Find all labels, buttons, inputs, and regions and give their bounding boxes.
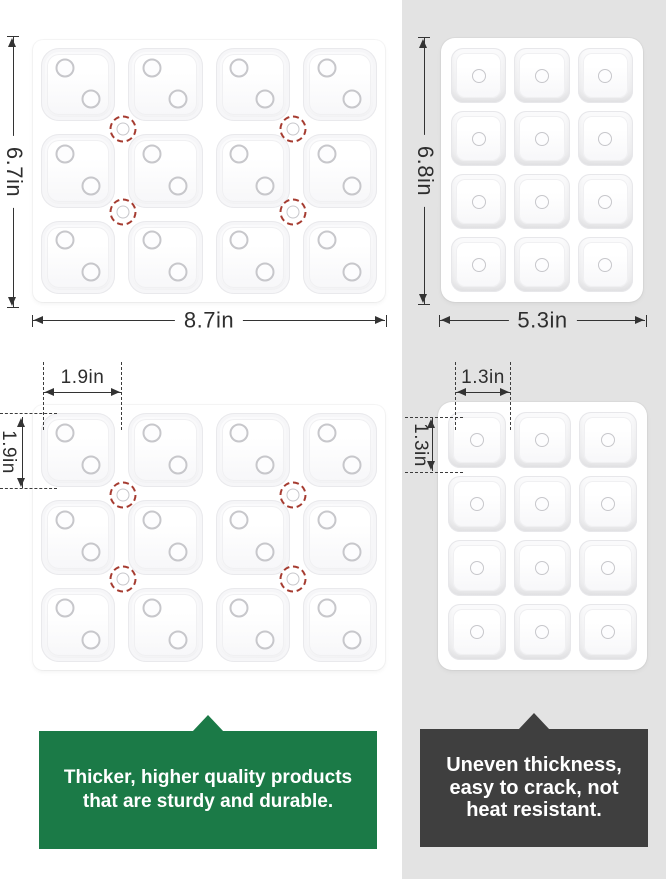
bad-cell-height-label: 1.3in [411,416,431,474]
vent-hole [598,195,612,209]
vent-hole [81,630,100,649]
guide-line [43,362,44,430]
vent-hole [317,598,336,617]
bad-callout-line: easy to crack, not [420,777,648,800]
vent-hole [117,123,130,136]
tray-compartment [41,48,115,121]
vent-hole [81,456,100,475]
vent-hole [117,572,130,585]
dimension-line-good-cell-width: 1.9in [44,392,121,393]
vent-hole [168,543,187,562]
dimension-cap [418,304,430,305]
vent-hole [535,258,549,272]
vent-hole [535,132,549,146]
vent-hole [55,58,74,77]
tray-compartment [216,588,290,662]
dimension-line-bad-width: 5.3in [440,320,645,321]
highlight-circle-marker [110,198,137,225]
tray-compartment [41,500,115,574]
good-cell-width-label: 1.9in [57,367,109,389]
arrow-up-icon [419,39,427,48]
vent-hole [55,231,74,250]
tray-compartment [216,221,290,294]
tray-compartment [303,588,377,662]
guide-line [510,362,511,430]
vent-hole [117,205,130,218]
vent-hole [535,195,549,209]
highlight-circle-marker [280,565,307,592]
tray-compartment [303,48,377,121]
compartment-grid [41,413,377,662]
vent-hole [256,630,275,649]
vent-hole [256,543,275,562]
vent-hole [317,231,336,250]
vent-hole [81,176,100,195]
vent-hole [256,90,275,109]
vent-hole [317,424,336,443]
vent-hole [535,561,549,575]
tray-compartment [128,588,202,662]
vent-hole [168,456,187,475]
vent-hole [601,561,615,575]
arrow-right-icon [111,388,120,396]
tray-compartment [216,134,290,207]
dimension-line-bad-cell-width: 1.3in [456,392,510,393]
highlight-circle-marker [280,116,307,143]
good-tray-top [33,40,385,302]
dimension-cap [7,36,19,37]
tray-compartment [579,476,637,532]
good-tray-width-label: 8.7in [175,307,243,333]
tray-compartment [216,48,290,121]
vent-hole [168,176,187,195]
tray-compartment [451,237,506,292]
compartment-grid [448,412,637,660]
vent-hole [287,123,300,136]
dimension-cap [32,315,33,327]
bad-tray-top [441,38,643,302]
dimension-line-good-width: 8.7in [33,320,385,321]
good-cell-height-label: 1.9in [0,423,19,481]
tray-compartment [303,221,377,294]
vent-hole [470,561,484,575]
callout-pointer-icon [518,713,550,730]
tray-compartment [41,134,115,207]
product-comparison-image: 6.7in 8.7in 6.8in 5.3in 1.9in 1.9in [0,0,666,879]
tray-compartment [128,500,202,574]
tray-compartment [448,604,506,660]
tray-compartment [303,413,377,487]
tray-compartment [578,174,633,229]
vent-hole [343,176,362,195]
vent-hole [535,625,549,639]
tray-compartment [303,500,377,574]
vent-hole [230,231,249,250]
tray-compartment [128,413,202,487]
vent-hole [535,497,549,511]
vent-hole [81,262,100,281]
vent-hole [143,58,162,77]
tray-compartment [41,588,115,662]
vent-hole [472,258,486,272]
vent-hole [55,145,74,164]
tray-compartment [514,540,572,596]
highlight-circle-marker [280,482,307,509]
vent-hole [317,145,336,164]
dimension-cap [386,315,387,327]
vent-hole [287,489,300,502]
tray-compartment [451,48,506,103]
bad-tray-width-label: 5.3in [508,307,576,333]
arrow-right-icon [375,316,384,324]
good-callout-line: that are sturdy and durable. [39,790,377,814]
guide-line [0,413,57,414]
compartment-grid [451,48,633,292]
tray-compartment [514,48,569,103]
vent-hole [470,625,484,639]
dimension-cap [418,37,430,38]
vent-hole [343,630,362,649]
vent-hole [343,262,362,281]
vent-hole [601,433,615,447]
arrow-left-icon [45,388,54,396]
tray-compartment [514,237,569,292]
tray-compartment [514,412,572,468]
vent-hole [598,258,612,272]
tray-compartment [578,111,633,166]
good-tray-bottom [33,405,385,670]
tray-compartment [579,604,637,660]
arrow-left-icon [441,316,450,324]
dimension-line-bad-cell-height [432,418,433,471]
vent-hole [470,433,484,447]
tray-compartment [451,174,506,229]
arrow-right-icon [500,388,509,396]
tray-compartment [578,237,633,292]
tray-compartment [448,540,506,596]
vent-hole [317,511,336,530]
highlight-circle-marker [110,565,137,592]
vent-hole [472,195,486,209]
vent-hole [117,489,130,502]
bad-tray-bottom [438,402,647,670]
guide-line [455,362,456,430]
tray-compartment [514,174,569,229]
tray-compartment [303,134,377,207]
tray-compartment [579,540,637,596]
vent-hole [230,424,249,443]
vent-hole [143,231,162,250]
callout-pointer-icon [192,715,224,732]
guide-line [121,362,122,430]
vent-hole [230,58,249,77]
arrow-left-icon [34,316,43,324]
vent-hole [230,145,249,164]
tray-compartment [578,48,633,103]
vent-hole [317,58,336,77]
vent-hole [472,132,486,146]
vent-hole [598,69,612,83]
dimension-line-bad-height: 6.8in [424,38,425,304]
vent-hole [287,572,300,585]
vent-hole [256,176,275,195]
arrow-down-icon [419,294,427,303]
vent-hole [143,598,162,617]
dimension-cap [7,307,19,308]
vent-hole [143,424,162,443]
guide-line [0,488,57,489]
bad-callout: Uneven thickness, easy to crack, not hea… [420,729,648,847]
tray-compartment [216,500,290,574]
bad-callout-line: heat resistant. [420,799,648,822]
dimension-line-good-height: 6.7in [13,37,14,307]
vent-hole [230,511,249,530]
arrow-right-icon [635,316,644,324]
tray-compartment [128,48,202,121]
vent-hole [230,598,249,617]
tray-compartment [41,413,115,487]
highlight-circle-marker [280,198,307,225]
compartment-grid [41,48,377,294]
vent-hole [535,433,549,447]
tray-compartment [514,111,569,166]
tray-compartment [579,412,637,468]
vent-hole [343,90,362,109]
good-callout-line: Thicker, higher quality products [39,766,377,790]
good-callout: Thicker, higher quality products that ar… [39,731,377,849]
highlight-circle-marker [110,116,137,143]
bad-callout-line: Uneven thickness, [420,754,648,777]
vent-hole [601,625,615,639]
arrow-left-icon [457,388,466,396]
vent-hole [598,132,612,146]
tray-compartment [216,413,290,487]
arrow-up-icon [8,38,16,47]
arrow-down-icon [8,297,16,306]
vent-hole [168,262,187,281]
dimension-cap [646,315,647,327]
vent-hole [256,456,275,475]
tray-compartment [448,412,506,468]
bad-cell-width-label: 1.3in [457,367,509,389]
vent-hole [343,543,362,562]
tray-compartment [514,476,572,532]
vent-hole [472,69,486,83]
tray-compartment [128,134,202,207]
dimension-line-good-cell-height [22,417,23,488]
bad-tray-height-label: 6.8in [412,135,438,207]
highlight-circle-marker [110,482,137,509]
vent-hole [81,90,100,109]
vent-hole [535,69,549,83]
tray-compartment [451,111,506,166]
vent-hole [55,598,74,617]
tray-compartment [514,604,572,660]
vent-hole [470,497,484,511]
vent-hole [143,145,162,164]
vent-hole [81,543,100,562]
good-tray-height-label: 6.7in [1,136,27,208]
tray-compartment [448,476,506,532]
vent-hole [143,511,162,530]
tray-compartment [128,221,202,294]
vent-hole [168,630,187,649]
vent-hole [256,262,275,281]
tray-compartment [41,221,115,294]
vent-hole [287,205,300,218]
vent-hole [601,497,615,511]
vent-hole [343,456,362,475]
vent-hole [55,511,74,530]
vent-hole [168,90,187,109]
vent-hole [55,424,74,443]
dimension-cap [439,315,440,327]
